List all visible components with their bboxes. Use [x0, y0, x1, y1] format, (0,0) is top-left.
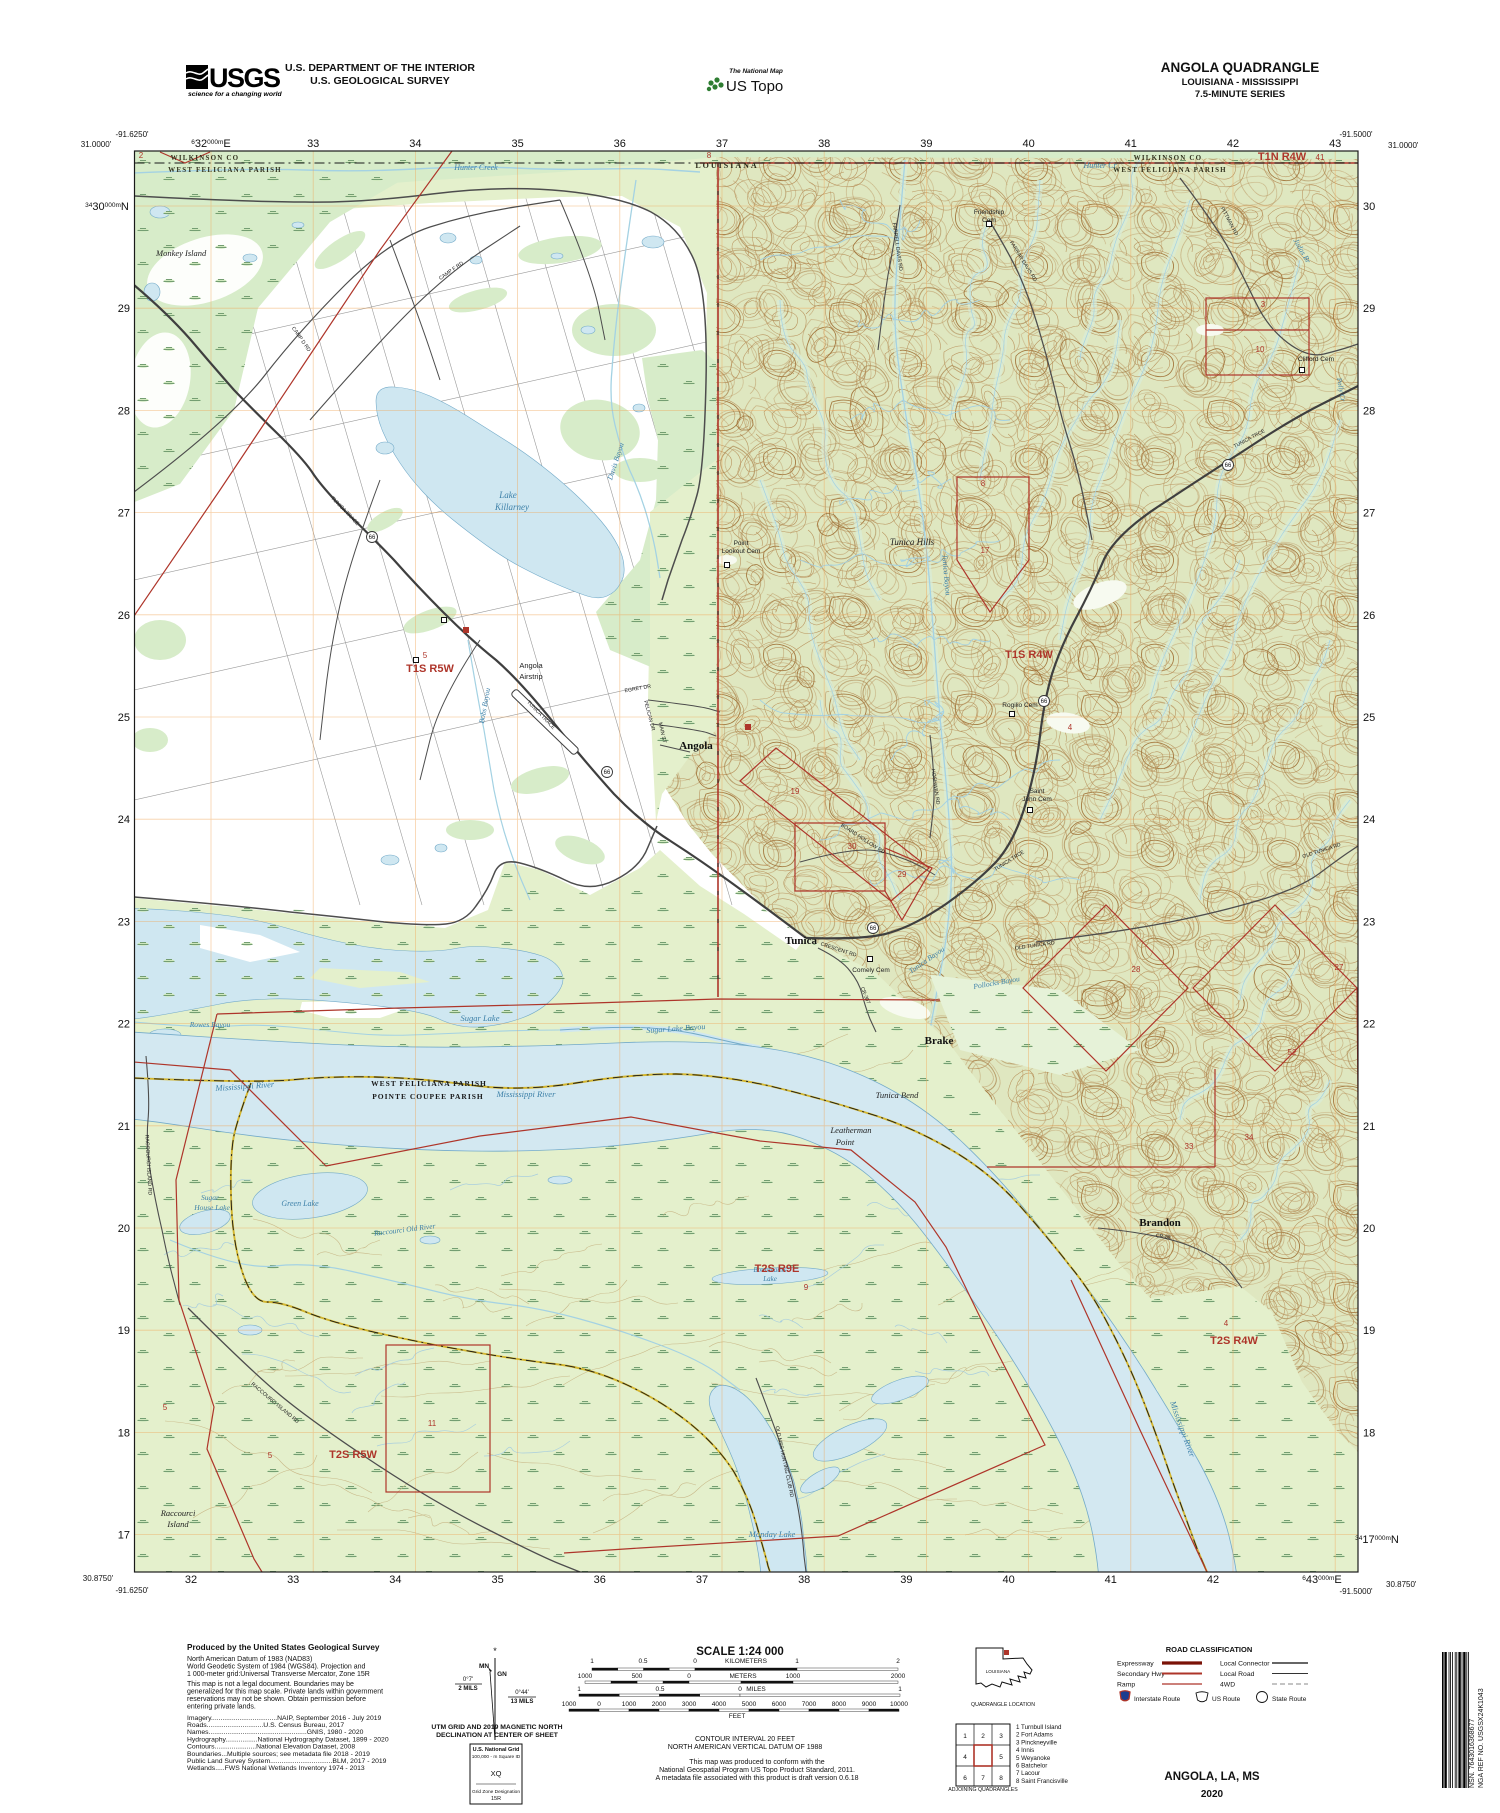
svg-text:WEST FELICIANA PARISH: WEST FELICIANA PARISH — [1113, 166, 1227, 174]
svg-text:LOUISIANA: LOUISIANA — [695, 161, 758, 170]
svg-text:2 MILS: 2 MILS — [458, 1686, 477, 1692]
svg-text:Point: Point — [734, 540, 749, 547]
svg-text:6: 6 — [963, 1775, 967, 1782]
svg-text:3: 3 — [999, 1733, 1003, 1740]
svg-text:WEST FELICIANA PARISH: WEST FELICIANA PARISH — [168, 166, 282, 174]
svg-text:5: 5 — [423, 651, 428, 660]
svg-text:37: 37 — [716, 138, 728, 150]
svg-text:1 000-meter grid:Universal Tra: 1 000-meter grid:Universal Transverse Me… — [187, 1671, 370, 1678]
svg-text:52: 52 — [1288, 1048, 1297, 1057]
svg-text:Cem: Cem — [982, 217, 996, 224]
svg-text:10000: 10000 — [890, 1701, 908, 1708]
svg-text:Ramp: Ramp — [1117, 1682, 1135, 1689]
svg-text:42: 42 — [1207, 1574, 1219, 1586]
svg-text:0: 0 — [693, 1658, 697, 1665]
svg-text:6 Batchelor: 6 Batchelor — [1016, 1763, 1047, 1770]
svg-text:science for a changing world: science for a changing world — [188, 91, 283, 98]
svg-text:1 Turnbull Island: 1 Turnbull Island — [1016, 1724, 1062, 1731]
svg-text:entering private lands.: entering private lands. — [187, 1703, 256, 1710]
svg-text:29: 29 — [1363, 303, 1375, 315]
svg-text:Tunica Hills: Tunica Hills — [890, 537, 935, 547]
svg-text:Rogilio Cem: Rogilio Cem — [1002, 702, 1037, 709]
svg-text:25: 25 — [118, 712, 130, 724]
svg-text:4000: 4000 — [712, 1701, 727, 1708]
svg-text:29: 29 — [898, 870, 907, 879]
svg-text:Point: Point — [835, 1137, 855, 1147]
svg-text:Tunica: Tunica — [785, 935, 818, 947]
svg-text:Saint: Saint — [1030, 788, 1045, 795]
svg-text:21: 21 — [1363, 1121, 1375, 1133]
svg-text:Produced by the United States: Produced by the United States Geological… — [187, 1643, 380, 1652]
svg-text:0: 0 — [597, 1701, 601, 1708]
svg-text:QUADRANGLE LOCATION: QUADRANGLE LOCATION — [971, 1702, 1035, 1708]
svg-text:1: 1 — [795, 1658, 799, 1665]
svg-text:ANGOLA QUADRANGLE: ANGOLA QUADRANGLE — [1161, 60, 1320, 75]
svg-text:T1S R5W: T1S R5W — [406, 663, 454, 675]
svg-text:17: 17 — [981, 546, 990, 555]
svg-text:66: 66 — [369, 535, 376, 541]
svg-text:33: 33 — [307, 138, 319, 150]
svg-text:USGS: USGS — [209, 63, 280, 93]
svg-text:39: 39 — [920, 138, 932, 150]
svg-text:LOUISIANA: LOUISIANA — [986, 1669, 1011, 1674]
svg-text:0: 0 — [738, 1686, 742, 1693]
svg-text:Imagery.......................: Imagery.................................… — [187, 1715, 382, 1722]
svg-text:5 Weyanoke: 5 Weyanoke — [1016, 1755, 1051, 1762]
svg-text:0.5: 0.5 — [655, 1686, 664, 1693]
svg-text:42: 42 — [1227, 138, 1239, 150]
svg-text:15R: 15R — [491, 1796, 501, 1802]
svg-text:Rowes Bayou: Rowes Bayou — [189, 1020, 231, 1029]
svg-text:T2S R4W: T2S R4W — [1210, 1335, 1258, 1347]
svg-text:7: 7 — [981, 1775, 985, 1782]
svg-text:29: 29 — [118, 303, 130, 315]
svg-text:Green Lake: Green Lake — [281, 1199, 319, 1208]
svg-text:27: 27 — [1363, 508, 1375, 520]
svg-text:28: 28 — [1132, 965, 1141, 974]
svg-text:26: 26 — [1363, 610, 1375, 622]
svg-text:27: 27 — [118, 508, 130, 520]
svg-text:Grid Zone Designation: Grid Zone Designation — [472, 1789, 520, 1795]
svg-text:30: 30 — [848, 842, 857, 851]
svg-text:SCALE 1:24 000: SCALE 1:24 000 — [696, 1646, 784, 1658]
svg-text:1: 1 — [898, 1686, 902, 1693]
svg-text:7 Lacour: 7 Lacour — [1016, 1770, 1040, 1777]
svg-text:WILKINSON CO: WILKINSON CO — [171, 154, 240, 162]
svg-text:National Geospatial Program US: National Geospatial Program US Topo Prod… — [659, 1767, 855, 1774]
svg-text:Comely Cem: Comely Cem — [852, 967, 890, 974]
svg-text:2020: 2020 — [1201, 1789, 1224, 1800]
svg-text:38: 38 — [798, 1574, 810, 1586]
svg-text:Hunter Cr: Hunter Cr — [1082, 161, 1117, 170]
svg-text:CONTOUR INTERVAL 20 FEET: CONTOUR INTERVAL 20 FEET — [695, 1736, 796, 1743]
svg-text:20: 20 — [1363, 1223, 1375, 1235]
svg-text:1: 1 — [577, 1686, 581, 1693]
svg-text:U.S. National Grid: U.S. National Grid — [473, 1747, 520, 1753]
svg-text:Public Land Survey System.....: Public Land Survey System...............… — [187, 1758, 387, 1765]
svg-text:19: 19 — [118, 1325, 130, 1337]
svg-text:XQ: XQ — [491, 1769, 502, 1778]
svg-text:US Topo: US Topo — [726, 78, 783, 95]
svg-text:House Lake: House Lake — [193, 1203, 230, 1212]
svg-text:26: 26 — [118, 610, 130, 622]
svg-text:LOUISIANA - MISSISSIPPI: LOUISIANA - MISSISSIPPI — [1182, 77, 1299, 88]
svg-text:Local Road: Local Road — [1220, 1671, 1255, 1678]
svg-text:MN: MN — [479, 1663, 489, 1670]
svg-text:28: 28 — [118, 405, 130, 417]
svg-text:0°44': 0°44' — [515, 1690, 529, 1696]
svg-text:37: 37 — [696, 1574, 708, 1586]
svg-text:DECLINATION AT CENTER OF SHEET: DECLINATION AT CENTER OF SHEET — [436, 1732, 559, 1739]
svg-text:4: 4 — [1224, 1319, 1229, 1328]
svg-text:5: 5 — [268, 1451, 273, 1460]
svg-text:NGA REF NO. USGSX24K1043: NGA REF NO. USGSX24K1043 — [1478, 1688, 1485, 1788]
svg-text:3000: 3000 — [682, 1701, 697, 1708]
svg-text:8 Saint Francisville: 8 Saint Francisville — [1016, 1778, 1068, 1785]
svg-text:World Geodetic System of 1984: World Geodetic System of 1984 (WGS84). P… — [187, 1663, 366, 1670]
svg-text:1: 1 — [963, 1733, 967, 1740]
svg-text:43: 43 — [1329, 138, 1341, 150]
svg-text:34: 34 — [1245, 1133, 1254, 1142]
svg-text:10: 10 — [1256, 345, 1265, 354]
svg-text:Hydrography.................Na: Hydrography.................National Hyd… — [187, 1736, 389, 1743]
svg-text:State Route: State Route — [1272, 1696, 1307, 1703]
svg-text:8: 8 — [981, 479, 986, 488]
svg-text:27: 27 — [1335, 963, 1344, 972]
svg-text:39: 39 — [900, 1574, 912, 1586]
svg-text:2 Fort Adams: 2 Fort Adams — [1016, 1732, 1053, 1739]
svg-text:41: 41 — [1316, 153, 1325, 162]
svg-text:NORTH AMERICAN VERTICAL DATUM: NORTH AMERICAN VERTICAL DATUM OF 1988 — [668, 1744, 823, 1751]
svg-text:36: 36 — [614, 138, 626, 150]
svg-text:Monkey Island: Monkey Island — [155, 248, 207, 258]
svg-text:Airstrip: Airstrip — [519, 672, 542, 681]
svg-text:Interstate Route: Interstate Route — [1134, 1696, 1181, 1703]
svg-text:Clifford Cem: Clifford Cem — [1298, 356, 1334, 363]
svg-text:3 Pinckneyville: 3 Pinckneyville — [1016, 1739, 1057, 1746]
svg-text:Monday Lake: Monday Lake — [748, 1529, 796, 1539]
svg-text:T1N R4W: T1N R4W — [1258, 151, 1307, 163]
svg-text:2000: 2000 — [652, 1701, 667, 1708]
svg-text:Names.........................: Names...................................… — [187, 1729, 364, 1736]
svg-text:66: 66 — [870, 926, 877, 932]
svg-text:John Cem: John Cem — [1022, 796, 1052, 803]
svg-text:500: 500 — [632, 1673, 643, 1680]
svg-text:4: 4 — [1068, 723, 1073, 732]
svg-text:6000: 6000 — [772, 1701, 787, 1708]
svg-text:22: 22 — [118, 1019, 130, 1031]
svg-text:23: 23 — [118, 916, 130, 928]
svg-text:U.S. GEOLOGICAL SURVEY: U.S. GEOLOGICAL SURVEY — [310, 75, 450, 87]
svg-text:Angola: Angola — [679, 740, 713, 752]
svg-text:Boundaries...Multiple source: Boundaries...Multiple sources; see metad… — [187, 1751, 370, 1758]
svg-text:4: 4 — [963, 1754, 967, 1761]
svg-text:Expressway: Expressway — [1117, 1661, 1154, 1668]
svg-text:0: 0 — [687, 1673, 691, 1680]
svg-text:Hunter Creek: Hunter Creek — [453, 163, 498, 172]
svg-text:7.5-MINUTE SERIES: 7.5-MINUTE SERIES — [1195, 89, 1285, 100]
svg-text:0.5: 0.5 — [638, 1658, 647, 1665]
svg-text:33: 33 — [287, 1574, 299, 1586]
svg-text:Mississippi River: Mississippi River — [496, 1089, 556, 1099]
svg-text:Angola: Angola — [519, 661, 543, 670]
svg-text:66: 66 — [1041, 699, 1048, 705]
svg-text:MILES: MILES — [746, 1686, 766, 1693]
svg-text:40: 40 — [1022, 138, 1034, 150]
svg-text:-91.5000': -91.5000' — [1339, 1587, 1373, 1596]
svg-text:5000: 5000 — [742, 1701, 757, 1708]
svg-text:2000: 2000 — [891, 1673, 906, 1680]
svg-text:7000: 7000 — [802, 1701, 817, 1708]
svg-text:35: 35 — [511, 138, 523, 150]
svg-text:FEET: FEET — [729, 1713, 746, 1720]
svg-text:Roads.........................: Roads..............................U.S. … — [187, 1722, 344, 1729]
svg-text:34: 34 — [409, 138, 421, 150]
svg-text:28: 28 — [1363, 405, 1375, 417]
svg-text:ANGOLA, LA, MS: ANGOLA, LA, MS — [1164, 1771, 1260, 1783]
svg-text:-91.6250': -91.6250' — [115, 130, 149, 139]
svg-text:41: 41 — [1125, 138, 1137, 150]
svg-text:Wetlands.....FWS National: Wetlands.....FWS National Wetlands Inven… — [187, 1765, 365, 1772]
svg-text:North American Datum of 1983 (: North American Datum of 1983 (NAD83) — [187, 1656, 312, 1663]
svg-text:The National Map: The National Map — [729, 68, 783, 75]
svg-text:19: 19 — [791, 787, 800, 796]
svg-text:66: 66 — [604, 770, 611, 776]
svg-text:33: 33 — [1185, 1142, 1194, 1151]
svg-text:0°7': 0°7' — [463, 1677, 473, 1683]
svg-text:Brake: Brake — [925, 1035, 954, 1047]
svg-text:Brandon: Brandon — [1139, 1217, 1181, 1229]
svg-text:T2S R9E: T2S R9E — [755, 1263, 800, 1275]
svg-text:18: 18 — [118, 1427, 130, 1439]
svg-text:31.0000': 31.0000' — [81, 140, 112, 149]
svg-text:WEST FELICIANA PARISH: WEST FELICIANA PARISH — [371, 1079, 487, 1088]
svg-text:A metadata file associated wit: A metadata file associated with this pro… — [655, 1775, 858, 1782]
svg-text:1000: 1000 — [578, 1673, 593, 1680]
svg-text:36: 36 — [594, 1574, 606, 1586]
svg-text:24: 24 — [1363, 814, 1375, 826]
svg-text:22: 22 — [1363, 1019, 1375, 1031]
svg-text:Killarney: Killarney — [494, 502, 529, 512]
svg-text:5: 5 — [999, 1754, 1003, 1761]
svg-text:Island: Island — [166, 1519, 189, 1529]
svg-text:NSN. 7643016368677: NSN. 7643016368677 — [1469, 1719, 1476, 1788]
svg-text:35: 35 — [491, 1574, 503, 1586]
svg-text:8000: 8000 — [832, 1701, 847, 1708]
svg-text:21: 21 — [118, 1121, 130, 1133]
svg-text:US Route: US Route — [1212, 1696, 1241, 1703]
svg-text:ROAD CLASSIFICATION: ROAD CLASSIFICATION — [1166, 1645, 1253, 1654]
svg-text:32: 32 — [185, 1574, 197, 1586]
svg-text:100,000 - m Square ID: 100,000 - m Square ID — [472, 1754, 521, 1760]
svg-text:Contours......................: Contours......................National E… — [187, 1744, 355, 1751]
svg-text:1000: 1000 — [562, 1701, 577, 1708]
svg-text:1000: 1000 — [786, 1673, 801, 1680]
svg-text:METERS: METERS — [729, 1673, 757, 1680]
svg-text:Leatherman: Leatherman — [829, 1125, 871, 1135]
svg-text:reservations may not be shown.: reservations may not be shown. Obtain pe… — [187, 1696, 366, 1703]
svg-text:Lake: Lake — [498, 490, 517, 500]
svg-text:66: 66 — [1225, 463, 1232, 469]
svg-text:30: 30 — [1363, 201, 1375, 213]
svg-text:19: 19 — [1363, 1325, 1375, 1337]
svg-text:41: 41 — [1105, 1574, 1117, 1586]
svg-text:20: 20 — [118, 1223, 130, 1235]
svg-text:ADJOINING QUADRANGLES: ADJOINING QUADRANGLES — [948, 1787, 1018, 1793]
svg-text:18: 18 — [1363, 1427, 1375, 1439]
svg-text:2: 2 — [981, 1733, 985, 1740]
svg-text:34: 34 — [389, 1574, 401, 1586]
svg-text:KILOMETERS: KILOMETERS — [725, 1658, 768, 1665]
svg-text:2: 2 — [139, 151, 144, 160]
svg-text:Lake: Lake — [762, 1275, 777, 1283]
svg-text:17: 17 — [118, 1530, 130, 1542]
svg-text:9000: 9000 — [862, 1701, 877, 1708]
svg-text:generalized for this map scale: generalized for this map scale. Private … — [187, 1689, 383, 1696]
svg-text:25: 25 — [1363, 712, 1375, 724]
svg-text:-91.6250': -91.6250' — [115, 1586, 149, 1595]
svg-text:3: 3 — [1261, 300, 1266, 309]
svg-text:*: * — [493, 1646, 497, 1656]
svg-text:8: 8 — [707, 151, 712, 160]
svg-text:11: 11 — [428, 1419, 437, 1428]
svg-text:This map was produced to confo: This map was produced to conform with th… — [689, 1759, 825, 1766]
svg-text:31.0000': 31.0000' — [1388, 141, 1419, 150]
svg-text:38: 38 — [818, 138, 830, 150]
svg-text:Secondary Hwy: Secondary Hwy — [1117, 1671, 1165, 1678]
svg-text:T2S R5W: T2S R5W — [329, 1449, 377, 1461]
svg-text:This map is not a legal docume: This map is not a legal document. Bounda… — [187, 1681, 354, 1688]
svg-text:Sugar Lake: Sugar Lake — [461, 1013, 500, 1023]
svg-text:9: 9 — [804, 1283, 809, 1292]
svg-text:POINTE COUPEE PARISH: POINTE COUPEE PARISH — [372, 1092, 484, 1101]
svg-text:Friendship: Friendship — [974, 209, 1005, 216]
svg-text:1: 1 — [590, 1658, 594, 1665]
svg-text:Sugar: Sugar — [201, 1193, 219, 1202]
svg-text:Lookout Cem: Lookout Cem — [722, 548, 761, 555]
svg-text:23: 23 — [1363, 916, 1375, 928]
svg-text:13 MILS: 13 MILS — [511, 1699, 534, 1705]
svg-text:Local Connector: Local Connector — [1220, 1661, 1270, 1668]
svg-text:30.8750': 30.8750' — [83, 1574, 114, 1583]
svg-text:T1S R4W: T1S R4W — [1005, 649, 1053, 661]
svg-text:GN: GN — [497, 1671, 507, 1678]
svg-text:U.S. DEPARTMENT OF THE INTERIO: U.S. DEPARTMENT OF THE INTERIOR — [285, 62, 475, 74]
svg-text:Raccourci: Raccourci — [160, 1508, 196, 1518]
svg-text:5: 5 — [163, 1403, 168, 1412]
svg-text:4WD: 4WD — [1220, 1682, 1235, 1689]
svg-text:1000: 1000 — [622, 1701, 637, 1708]
svg-text:30.8750': 30.8750' — [1386, 1580, 1417, 1589]
svg-text:WILKINSON CO: WILKINSON CO — [1134, 154, 1203, 162]
svg-text:24: 24 — [118, 814, 130, 826]
svg-text:4 Innis: 4 Innis — [1016, 1747, 1034, 1754]
svg-text:2: 2 — [896, 1658, 900, 1665]
svg-text:Tunica Bend: Tunica Bend — [876, 1090, 919, 1100]
svg-text:UTM GRID AND 2019 MAGNETIC NOR: UTM GRID AND 2019 MAGNETIC NORTH — [431, 1724, 562, 1731]
svg-text:40: 40 — [1002, 1574, 1014, 1586]
svg-text:8: 8 — [999, 1775, 1003, 1782]
svg-text:-91.5000': -91.5000' — [1339, 130, 1373, 139]
